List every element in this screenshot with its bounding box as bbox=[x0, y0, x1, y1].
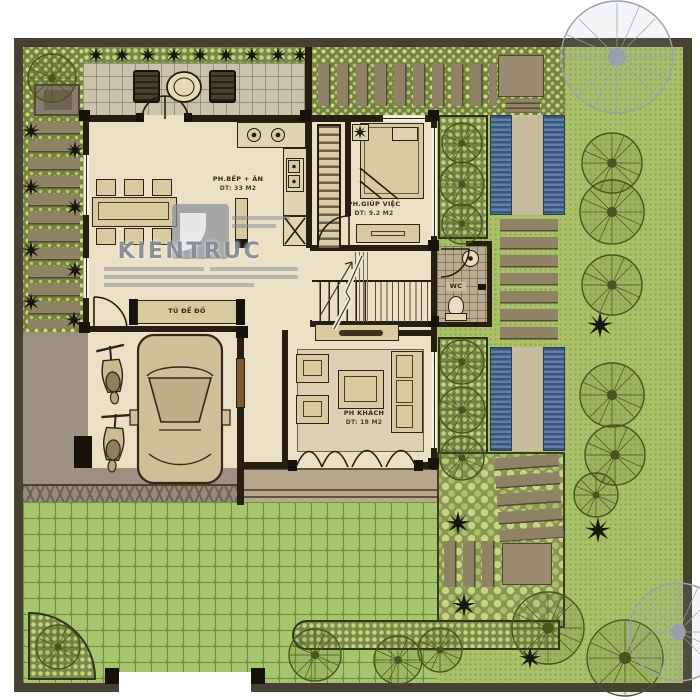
storage-label: TỦ ĐỂ ĐỒ bbox=[137, 307, 237, 316]
wc-label: WC bbox=[446, 282, 466, 291]
watermark-bar bbox=[210, 267, 298, 271]
watermark-bar bbox=[104, 275, 298, 279]
kitchen-dining-area: DT: 33 M2 bbox=[193, 185, 283, 193]
gate-opening bbox=[119, 672, 251, 692]
watermark-bar bbox=[104, 267, 204, 271]
watermark-bar bbox=[232, 224, 276, 228]
watermark-bar bbox=[232, 216, 290, 220]
living-room-area: DT: 18 M2 bbox=[326, 419, 402, 427]
watermark-bar bbox=[104, 283, 254, 287]
living-room-label: PH KHÁCH bbox=[326, 409, 402, 418]
maid-room-area: DT: 9.2 M2 bbox=[336, 210, 412, 218]
gate-post bbox=[105, 668, 119, 684]
kitchen-dining-label: PH.BẾP + ĂN bbox=[193, 175, 283, 184]
gate-post bbox=[251, 668, 265, 684]
site-boundary-wall bbox=[14, 38, 692, 692]
maid-room-label: PH.GIÚP VIỆC bbox=[336, 200, 412, 209]
watermark-text: KIENTRUC bbox=[95, 239, 285, 265]
floor-plan: KIENTRUC bbox=[0, 0, 700, 700]
